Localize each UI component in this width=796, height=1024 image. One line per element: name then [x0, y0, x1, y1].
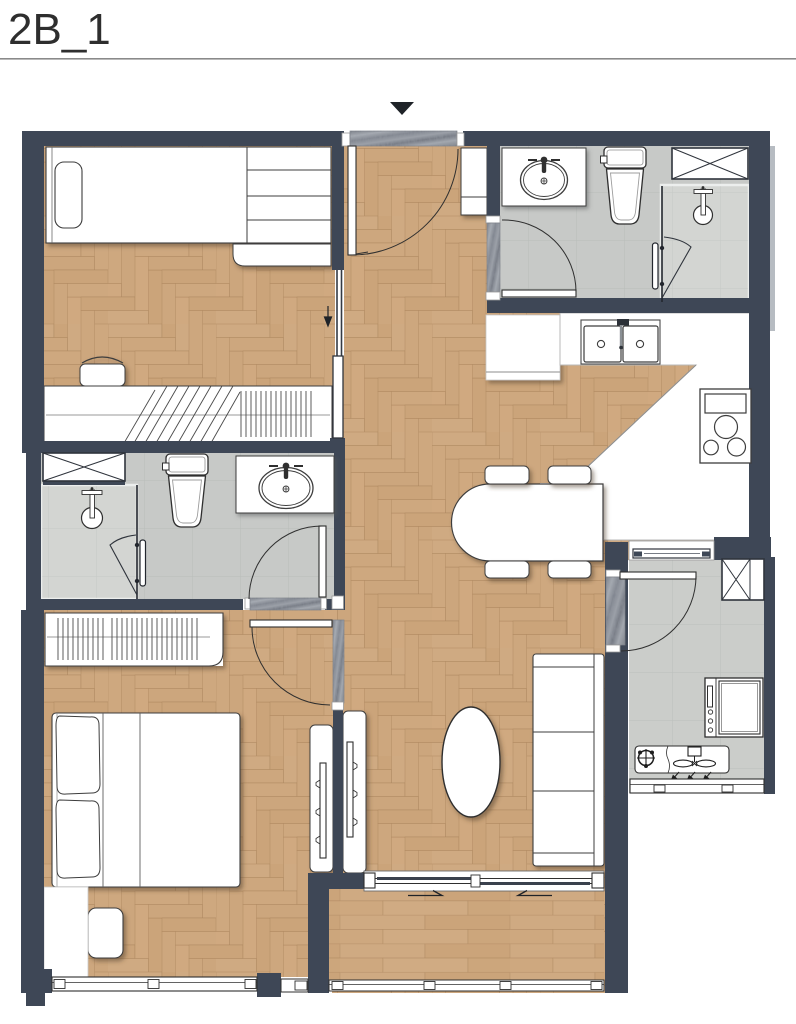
svg-text:2B_1: 2B_1 — [8, 5, 111, 54]
